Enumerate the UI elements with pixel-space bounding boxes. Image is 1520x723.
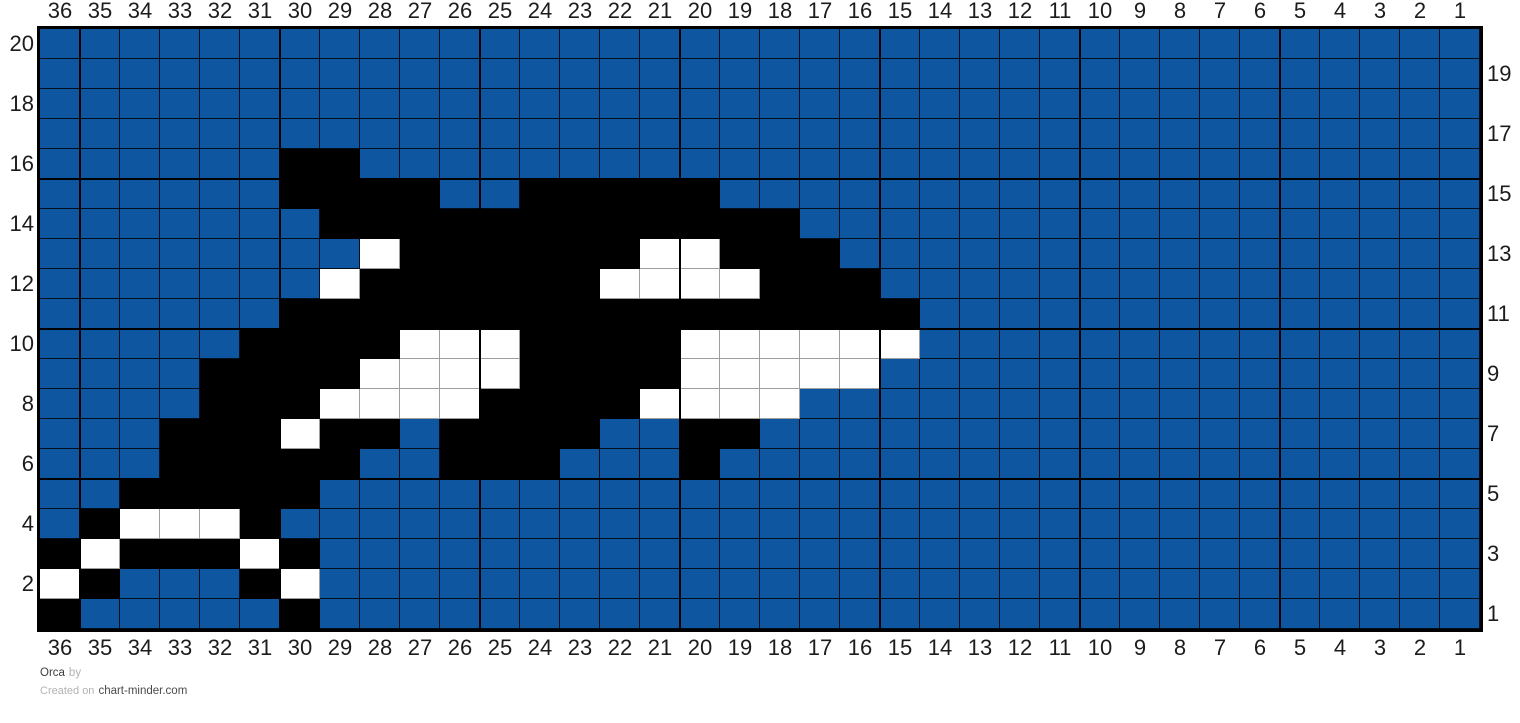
grid-cell	[120, 419, 160, 449]
column-label-top: 15	[880, 0, 920, 24]
grid-cell	[1120, 29, 1160, 59]
grid-cell	[400, 119, 440, 149]
grid-cell	[320, 59, 360, 89]
grid-cell	[360, 449, 400, 479]
grid-cell	[600, 329, 640, 359]
grid-cell	[1440, 299, 1480, 329]
grid-cell	[960, 209, 1000, 239]
grid-cell	[680, 179, 720, 209]
grid-cell	[1320, 209, 1360, 239]
grid-cell	[880, 479, 920, 509]
grid-cell	[240, 389, 280, 419]
grid-cell	[80, 119, 120, 149]
grid-cell	[800, 269, 840, 299]
grid-cell	[1440, 89, 1480, 119]
grid-cell	[40, 59, 80, 89]
grid-cell	[760, 59, 800, 89]
grid-cell	[360, 509, 400, 539]
column-label-bottom: 19	[720, 635, 760, 661]
grid-cell	[720, 449, 760, 479]
grid-cell	[1200, 359, 1240, 389]
grid-cell	[760, 29, 800, 59]
grid-cell	[800, 149, 840, 179]
grid-cell	[520, 119, 560, 149]
grid-cell	[120, 89, 160, 119]
grid-cell	[720, 239, 760, 269]
grid-cell	[560, 29, 600, 59]
grid-cell	[720, 509, 760, 539]
grid-cell	[1360, 299, 1400, 329]
grid-cell	[280, 389, 320, 419]
pattern-cells	[40, 29, 1480, 629]
chart-minder-link[interactable]: chart-minder.com	[98, 685, 187, 697]
column-label-bottom: 23	[560, 635, 600, 661]
grid-cell	[720, 29, 760, 59]
grid-cell	[640, 149, 680, 179]
grid-cell	[1080, 119, 1120, 149]
column-label-top: 9	[1120, 0, 1160, 24]
grid-cell	[1240, 599, 1280, 629]
grid-cell	[1240, 179, 1280, 209]
grid-cell	[360, 479, 400, 509]
grid-cell	[280, 419, 320, 449]
grid-cell	[920, 359, 960, 389]
grid-cell	[80, 359, 120, 389]
grid-cell	[1200, 509, 1240, 539]
grid-cell	[640, 299, 680, 329]
grid-cell	[680, 239, 720, 269]
grid-cell	[880, 329, 920, 359]
grid-cell	[560, 329, 600, 359]
grid-cell	[920, 599, 960, 629]
grid-cell	[1280, 539, 1320, 569]
grid-cell	[1080, 599, 1120, 629]
grid-cell	[280, 269, 320, 299]
grid-cell	[480, 59, 520, 89]
grid-cell	[880, 509, 920, 539]
grid-cell	[360, 539, 400, 569]
grid-cell	[960, 329, 1000, 359]
grid-cell	[1120, 89, 1160, 119]
grid-cell	[1240, 239, 1280, 269]
grid-cell	[1240, 479, 1280, 509]
grid-cell	[640, 119, 680, 149]
grid-cell	[160, 539, 200, 569]
grid-cell	[1000, 569, 1040, 599]
grid-cell	[360, 419, 400, 449]
column-label-bottom: 35	[80, 635, 120, 661]
column-label-bottom: 12	[1000, 635, 1040, 661]
grid-cell	[1200, 179, 1240, 209]
column-label-top: 7	[1200, 0, 1240, 24]
grid-cell	[800, 119, 840, 149]
grid-cell	[1400, 419, 1440, 449]
grid-cell	[680, 539, 720, 569]
grid-cell	[800, 179, 840, 209]
column-label-bottom: 34	[120, 635, 160, 661]
grid-cell	[480, 329, 520, 359]
column-label-top: 35	[80, 0, 120, 24]
grid-cell	[800, 299, 840, 329]
grid-cell	[1120, 509, 1160, 539]
grid-cell	[80, 209, 120, 239]
grid-cell	[120, 119, 160, 149]
grid-cell	[520, 359, 560, 389]
grid-cell	[1280, 299, 1320, 329]
grid-cell	[720, 119, 760, 149]
grid-cell	[1400, 479, 1440, 509]
grid-cell	[40, 239, 80, 269]
grid-cell	[280, 179, 320, 209]
grid-cell	[840, 89, 880, 119]
grid-cell	[160, 179, 200, 209]
grid-cell	[360, 119, 400, 149]
grid-cell	[280, 149, 320, 179]
grid-cell	[1160, 599, 1200, 629]
grid-cell	[120, 599, 160, 629]
grid-cell	[1320, 329, 1360, 359]
grid-cell	[720, 149, 760, 179]
grid-cell	[200, 299, 240, 329]
grid-cell	[800, 239, 840, 269]
grid-cell	[280, 59, 320, 89]
grid-cell	[1080, 449, 1120, 479]
grid-cell	[480, 359, 520, 389]
grid-cell	[1120, 149, 1160, 179]
grid-cell	[200, 209, 240, 239]
grid-cell	[560, 299, 600, 329]
row-label-left: 18	[0, 91, 34, 117]
column-label-top: 23	[560, 0, 600, 24]
grid-cell	[640, 179, 680, 209]
grid-cell	[1400, 269, 1440, 299]
grid-cell	[1120, 59, 1160, 89]
grid-cell	[280, 239, 320, 269]
grid-cell	[800, 539, 840, 569]
grid-cell	[280, 89, 320, 119]
grid-cell	[240, 149, 280, 179]
grid-cell	[1000, 89, 1040, 119]
grid-cell	[1280, 59, 1320, 89]
grid-cell	[120, 59, 160, 89]
grid-cell	[760, 599, 800, 629]
grid-cell	[40, 89, 80, 119]
grid-cell	[320, 539, 360, 569]
grid-cell	[600, 389, 640, 419]
row-label-left: 10	[0, 331, 34, 357]
grid-cell	[1360, 149, 1400, 179]
grid-cell	[320, 299, 360, 329]
grid-cell	[320, 449, 360, 479]
grid-cell	[840, 389, 880, 419]
grid-cell	[1400, 599, 1440, 629]
grid-cell	[1000, 329, 1040, 359]
grid-cell	[400, 599, 440, 629]
grid-cell	[160, 419, 200, 449]
grid-cell	[200, 509, 240, 539]
grid-cell	[1080, 359, 1120, 389]
grid-cell	[600, 359, 640, 389]
grid-cell	[1040, 239, 1080, 269]
grid-cell	[280, 509, 320, 539]
grid-cell	[1200, 149, 1240, 179]
grid-cell	[760, 419, 800, 449]
grid-cell	[1040, 599, 1080, 629]
column-label-bottom: 31	[240, 635, 280, 661]
grid-cell	[920, 209, 960, 239]
grid-cell	[960, 419, 1000, 449]
column-label-bottom: 33	[160, 635, 200, 661]
grid-cell	[200, 329, 240, 359]
grid-cell	[1360, 569, 1400, 599]
grid-cell	[80, 449, 120, 479]
grid-cell	[1320, 119, 1360, 149]
grid-cell	[1080, 149, 1120, 179]
grid-cell	[880, 299, 920, 329]
grid-cell	[1440, 419, 1480, 449]
grid-cell	[1000, 149, 1040, 179]
grid-cell	[560, 419, 600, 449]
grid-cell	[760, 269, 800, 299]
grid-cell	[520, 239, 560, 269]
grid-cell	[1200, 119, 1240, 149]
grid-cell	[920, 269, 960, 299]
grid-cell	[600, 599, 640, 629]
grid-cell	[760, 539, 800, 569]
grid-cell	[80, 389, 120, 419]
grid-cell	[80, 299, 120, 329]
grid-cell	[560, 359, 600, 389]
grid-cell	[520, 89, 560, 119]
by-label: by	[69, 667, 81, 679]
column-label-top: 31	[240, 0, 280, 24]
column-label-top: 30	[280, 0, 320, 24]
column-label-bottom: 24	[520, 635, 560, 661]
grid-cell	[720, 179, 760, 209]
grid-cell	[1400, 59, 1440, 89]
grid-cell	[960, 509, 1000, 539]
grid-cell	[600, 449, 640, 479]
grid-cell	[640, 59, 680, 89]
row-label-right: 11	[1487, 301, 1519, 327]
grid-cell	[800, 389, 840, 419]
column-label-bottom: 21	[640, 635, 680, 661]
grid-cell	[1280, 119, 1320, 149]
column-label-bottom: 20	[680, 635, 720, 661]
row-label-right: 3	[1487, 541, 1519, 567]
grid-cell	[1400, 149, 1440, 179]
grid-cell	[1000, 179, 1040, 209]
grid-cell	[440, 149, 480, 179]
grid-cell	[1240, 509, 1280, 539]
column-label-top: 20	[680, 0, 720, 24]
row-label-left: 2	[0, 571, 34, 597]
grid-cell	[600, 179, 640, 209]
grid-cell	[1360, 539, 1400, 569]
grid-cell	[520, 179, 560, 209]
grid-cell	[600, 539, 640, 569]
grid-cell	[520, 419, 560, 449]
grid-cell	[440, 299, 480, 329]
grid-cell	[960, 119, 1000, 149]
grid-cell	[1120, 299, 1160, 329]
grid-cell	[840, 539, 880, 569]
grid-cell	[120, 359, 160, 389]
grid-cell	[1120, 389, 1160, 419]
grid-cell	[1400, 179, 1440, 209]
row-label-right: 9	[1487, 361, 1519, 387]
row-label-right: 15	[1487, 181, 1519, 207]
grid-cell	[920, 539, 960, 569]
grid-cell	[1280, 89, 1320, 119]
grid-cell	[1040, 479, 1080, 509]
grid-cell	[1320, 29, 1360, 59]
grid-cell	[520, 329, 560, 359]
grid-cell	[200, 89, 240, 119]
grid-cell	[920, 119, 960, 149]
grid-cell	[560, 389, 600, 419]
row-label-right: 13	[1487, 241, 1519, 267]
grid-cell	[400, 359, 440, 389]
grid-cell	[1440, 239, 1480, 269]
grid-cell	[840, 449, 880, 479]
grid-cell	[440, 89, 480, 119]
grid-cell	[840, 569, 880, 599]
grid-cell	[680, 479, 720, 509]
grid-cell	[680, 89, 720, 119]
grid-cell	[520, 149, 560, 179]
grid-cell	[1080, 239, 1120, 269]
grid-cell	[680, 209, 720, 239]
grid-cell	[1280, 239, 1320, 269]
column-label-top: 2	[1400, 0, 1440, 24]
row-label-right: 17	[1487, 121, 1519, 147]
grid-cell	[880, 179, 920, 209]
grid-cell	[560, 479, 600, 509]
grid-cell	[800, 599, 840, 629]
column-label-bottom: 7	[1200, 635, 1240, 661]
grid-cell	[1160, 449, 1200, 479]
grid-cell	[320, 269, 360, 299]
grid-cell	[840, 119, 880, 149]
grid-cell	[560, 509, 600, 539]
row-label-right: 19	[1487, 61, 1519, 87]
grid-cell	[1440, 329, 1480, 359]
grid-cell	[920, 179, 960, 209]
grid-cell	[880, 569, 920, 599]
grid-cell	[40, 389, 80, 419]
grid-cell	[840, 599, 880, 629]
grid-cell	[640, 389, 680, 419]
grid-cell	[480, 539, 520, 569]
grid-cell	[240, 269, 280, 299]
grid-cell	[160, 569, 200, 599]
grid-cell	[1280, 389, 1320, 419]
grid-cell	[560, 179, 600, 209]
grid-cell	[760, 479, 800, 509]
row-label-left: 4	[0, 511, 34, 537]
grid-cell	[1280, 509, 1320, 539]
grid-cell	[200, 59, 240, 89]
grid-cell	[320, 119, 360, 149]
grid-cell	[200, 119, 240, 149]
grid-cell	[320, 209, 360, 239]
grid-cell	[120, 29, 160, 59]
grid-cell	[240, 179, 280, 209]
column-label-top: 21	[640, 0, 680, 24]
column-label-top: 16	[840, 0, 880, 24]
grid-cell	[1000, 119, 1040, 149]
column-label-bottom: 5	[1280, 635, 1320, 661]
grid-cell	[720, 329, 760, 359]
grid-cell	[440, 119, 480, 149]
grid-cell	[400, 419, 440, 449]
column-label-top: 10	[1080, 0, 1120, 24]
grid-cell	[640, 209, 680, 239]
grid-cell	[1040, 509, 1080, 539]
grid-cell	[320, 329, 360, 359]
grid-cell	[1200, 299, 1240, 329]
grid-cell	[680, 299, 720, 329]
grid-cell	[920, 479, 960, 509]
grid-cell	[560, 89, 600, 119]
column-label-top: 33	[160, 0, 200, 24]
column-label-top: 13	[960, 0, 1000, 24]
grid-cell	[1360, 59, 1400, 89]
grid-cell	[400, 569, 440, 599]
grid-cell	[1320, 59, 1360, 89]
grid-cell	[840, 479, 880, 509]
grid-cell	[920, 449, 960, 479]
grid-cell	[320, 419, 360, 449]
row-label-left: 8	[0, 391, 34, 417]
grid-cell	[400, 449, 440, 479]
grid-cell	[400, 509, 440, 539]
grid-cell	[800, 359, 840, 389]
grid-cell	[80, 539, 120, 569]
grid-cell	[720, 419, 760, 449]
grid-cell	[1080, 419, 1120, 449]
grid-cell	[880, 269, 920, 299]
grid-cell	[320, 89, 360, 119]
grid-cell	[1280, 569, 1320, 599]
column-label-bottom: 30	[280, 635, 320, 661]
grid-cell	[400, 209, 440, 239]
grid-cell	[1000, 479, 1040, 509]
column-label-bottom: 9	[1120, 635, 1160, 661]
grid-cell	[1000, 539, 1040, 569]
grid-cell	[80, 179, 120, 209]
grid-cell	[1360, 389, 1400, 419]
grid-cell	[1360, 89, 1400, 119]
grid-cell	[520, 389, 560, 419]
grid-cell	[560, 599, 600, 629]
grid-cell	[1080, 299, 1120, 329]
grid-cell	[200, 359, 240, 389]
grid-cell	[360, 29, 400, 59]
grid-cell	[200, 269, 240, 299]
grid-cell	[1320, 419, 1360, 449]
grid-cell	[440, 239, 480, 269]
column-label-bottom: 3	[1360, 635, 1400, 661]
grid-cell	[120, 149, 160, 179]
grid-cell	[160, 449, 200, 479]
grid-cell	[680, 359, 720, 389]
grid-cell	[1120, 419, 1160, 449]
grid-cell	[240, 599, 280, 629]
grid-cell	[480, 89, 520, 119]
grid-cell	[40, 569, 80, 599]
